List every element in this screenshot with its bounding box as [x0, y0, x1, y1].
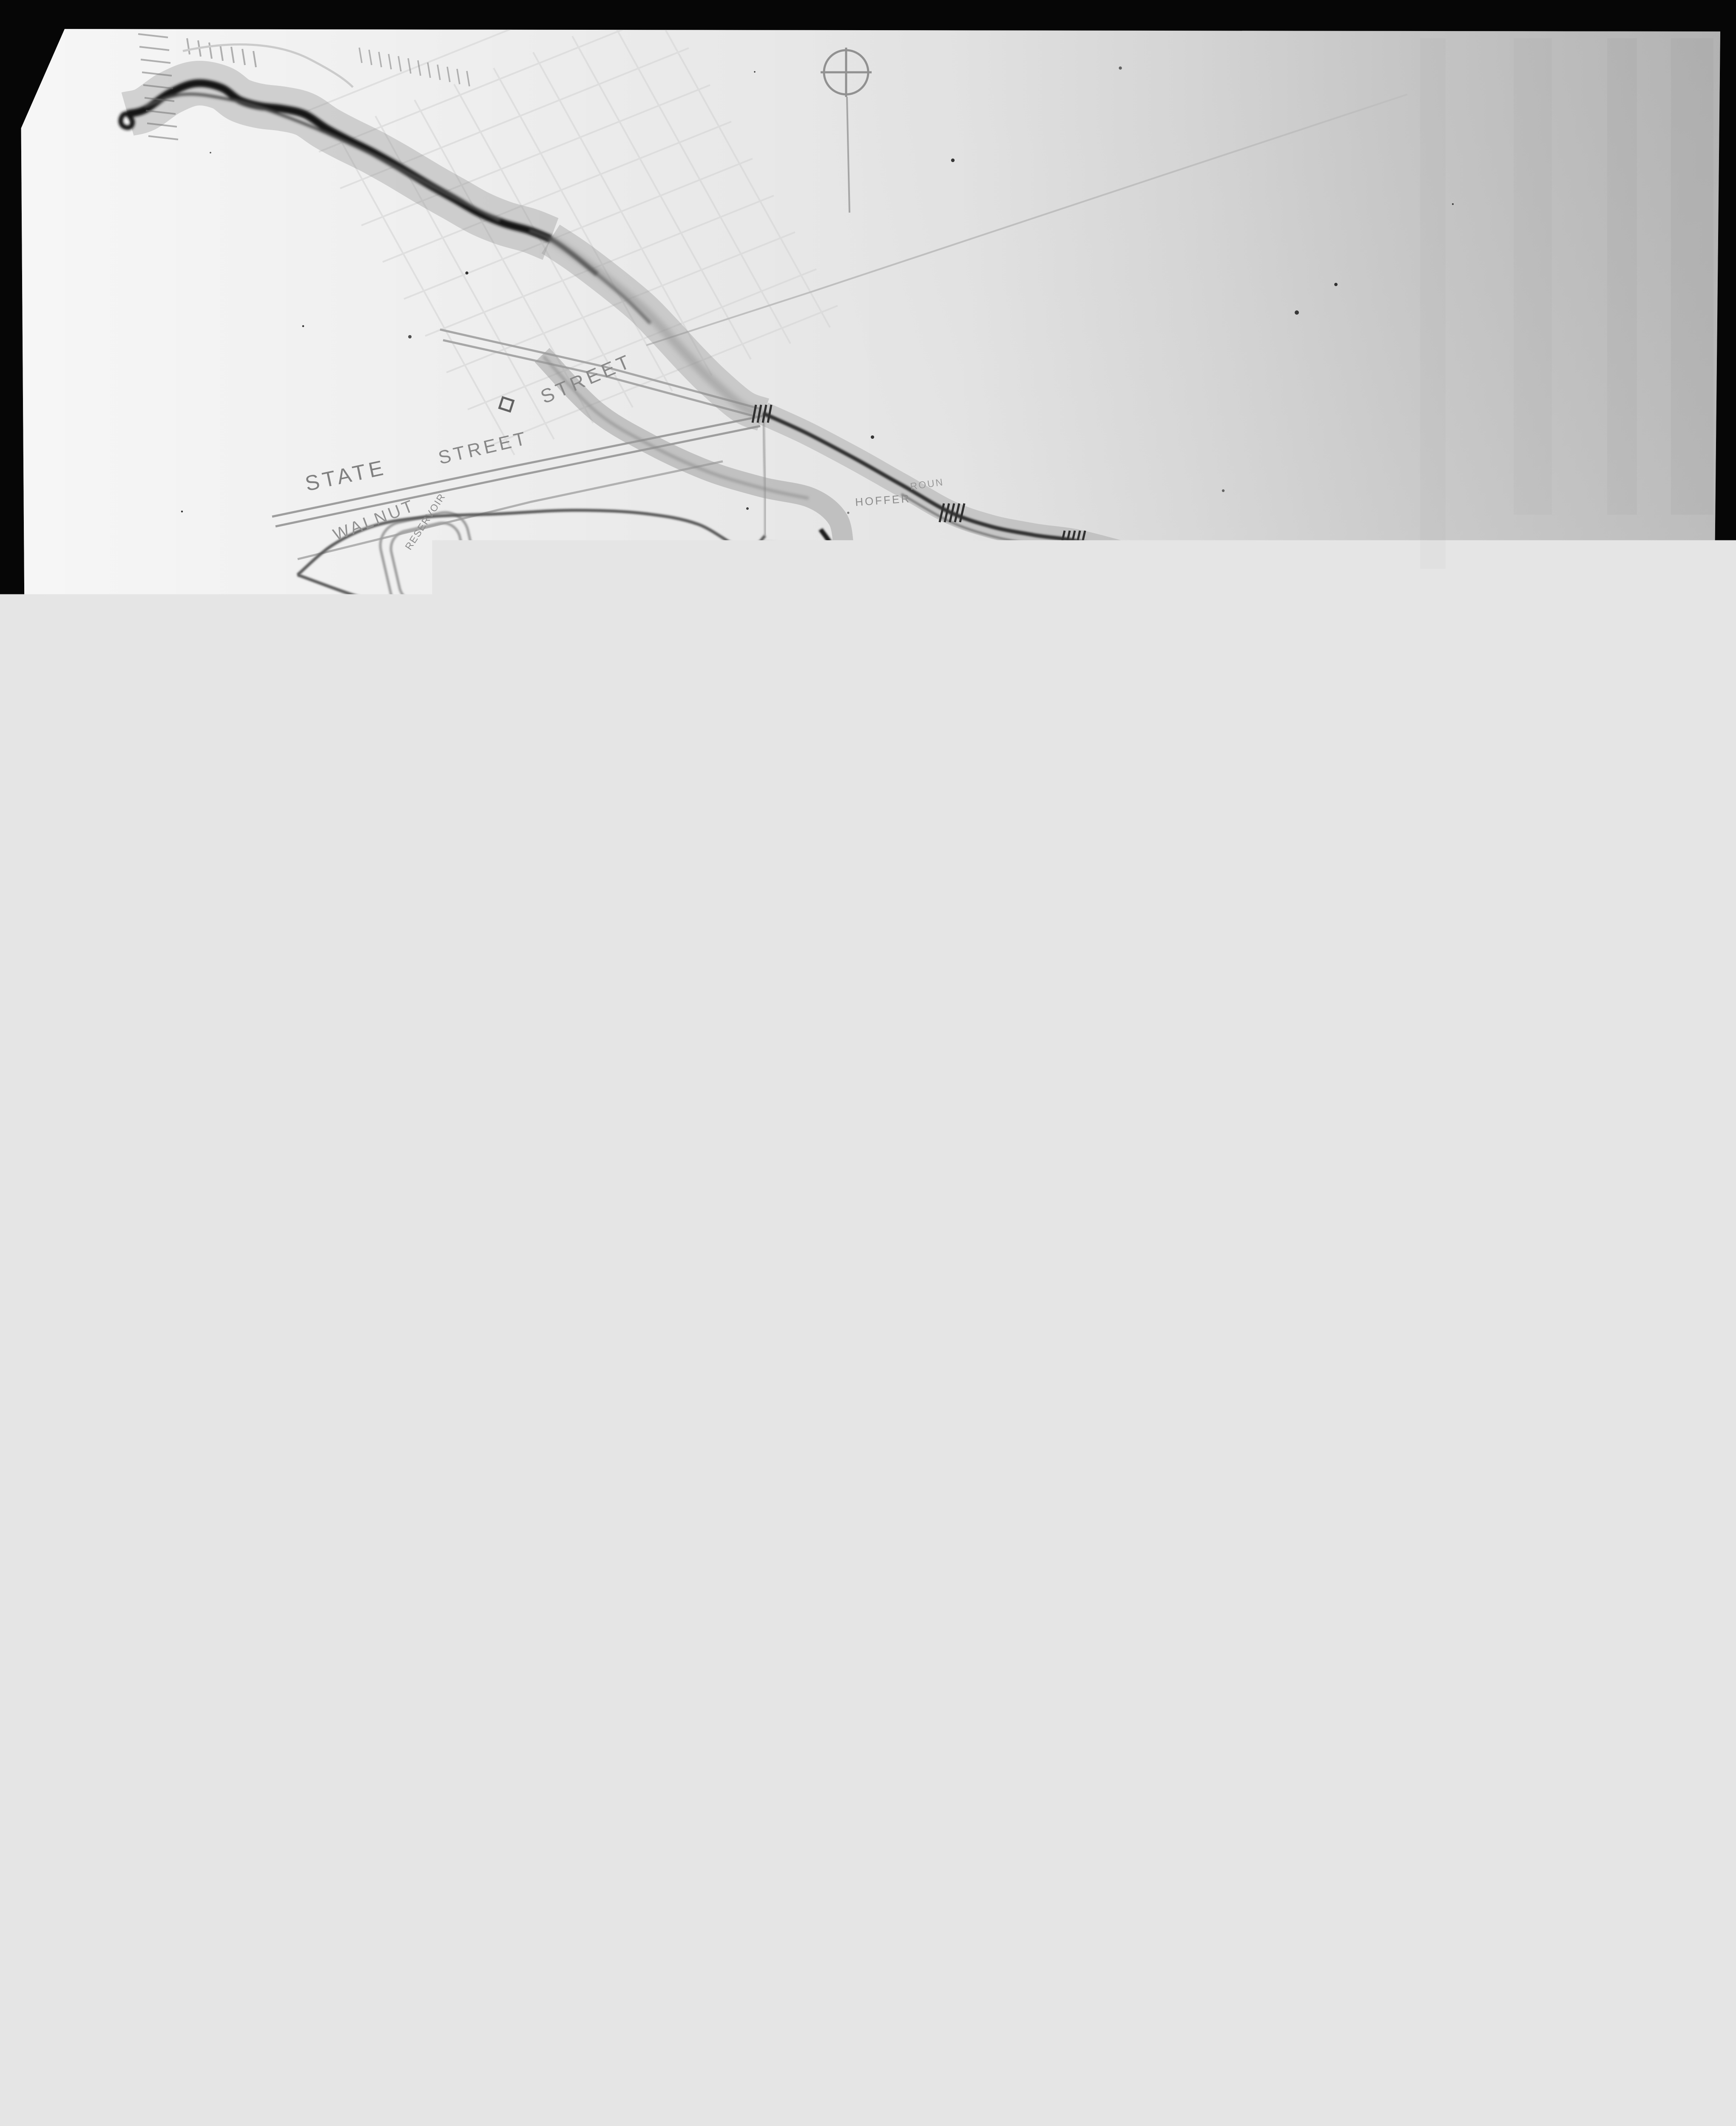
svg-text:ST: ST	[776, 1590, 795, 1605]
svg-text:Penn R.R.: Penn R.R.	[979, 1432, 1057, 1450]
svg-text:ST: ST	[699, 1488, 719, 1503]
svg-text:HILL: HILL	[1173, 624, 1212, 642]
